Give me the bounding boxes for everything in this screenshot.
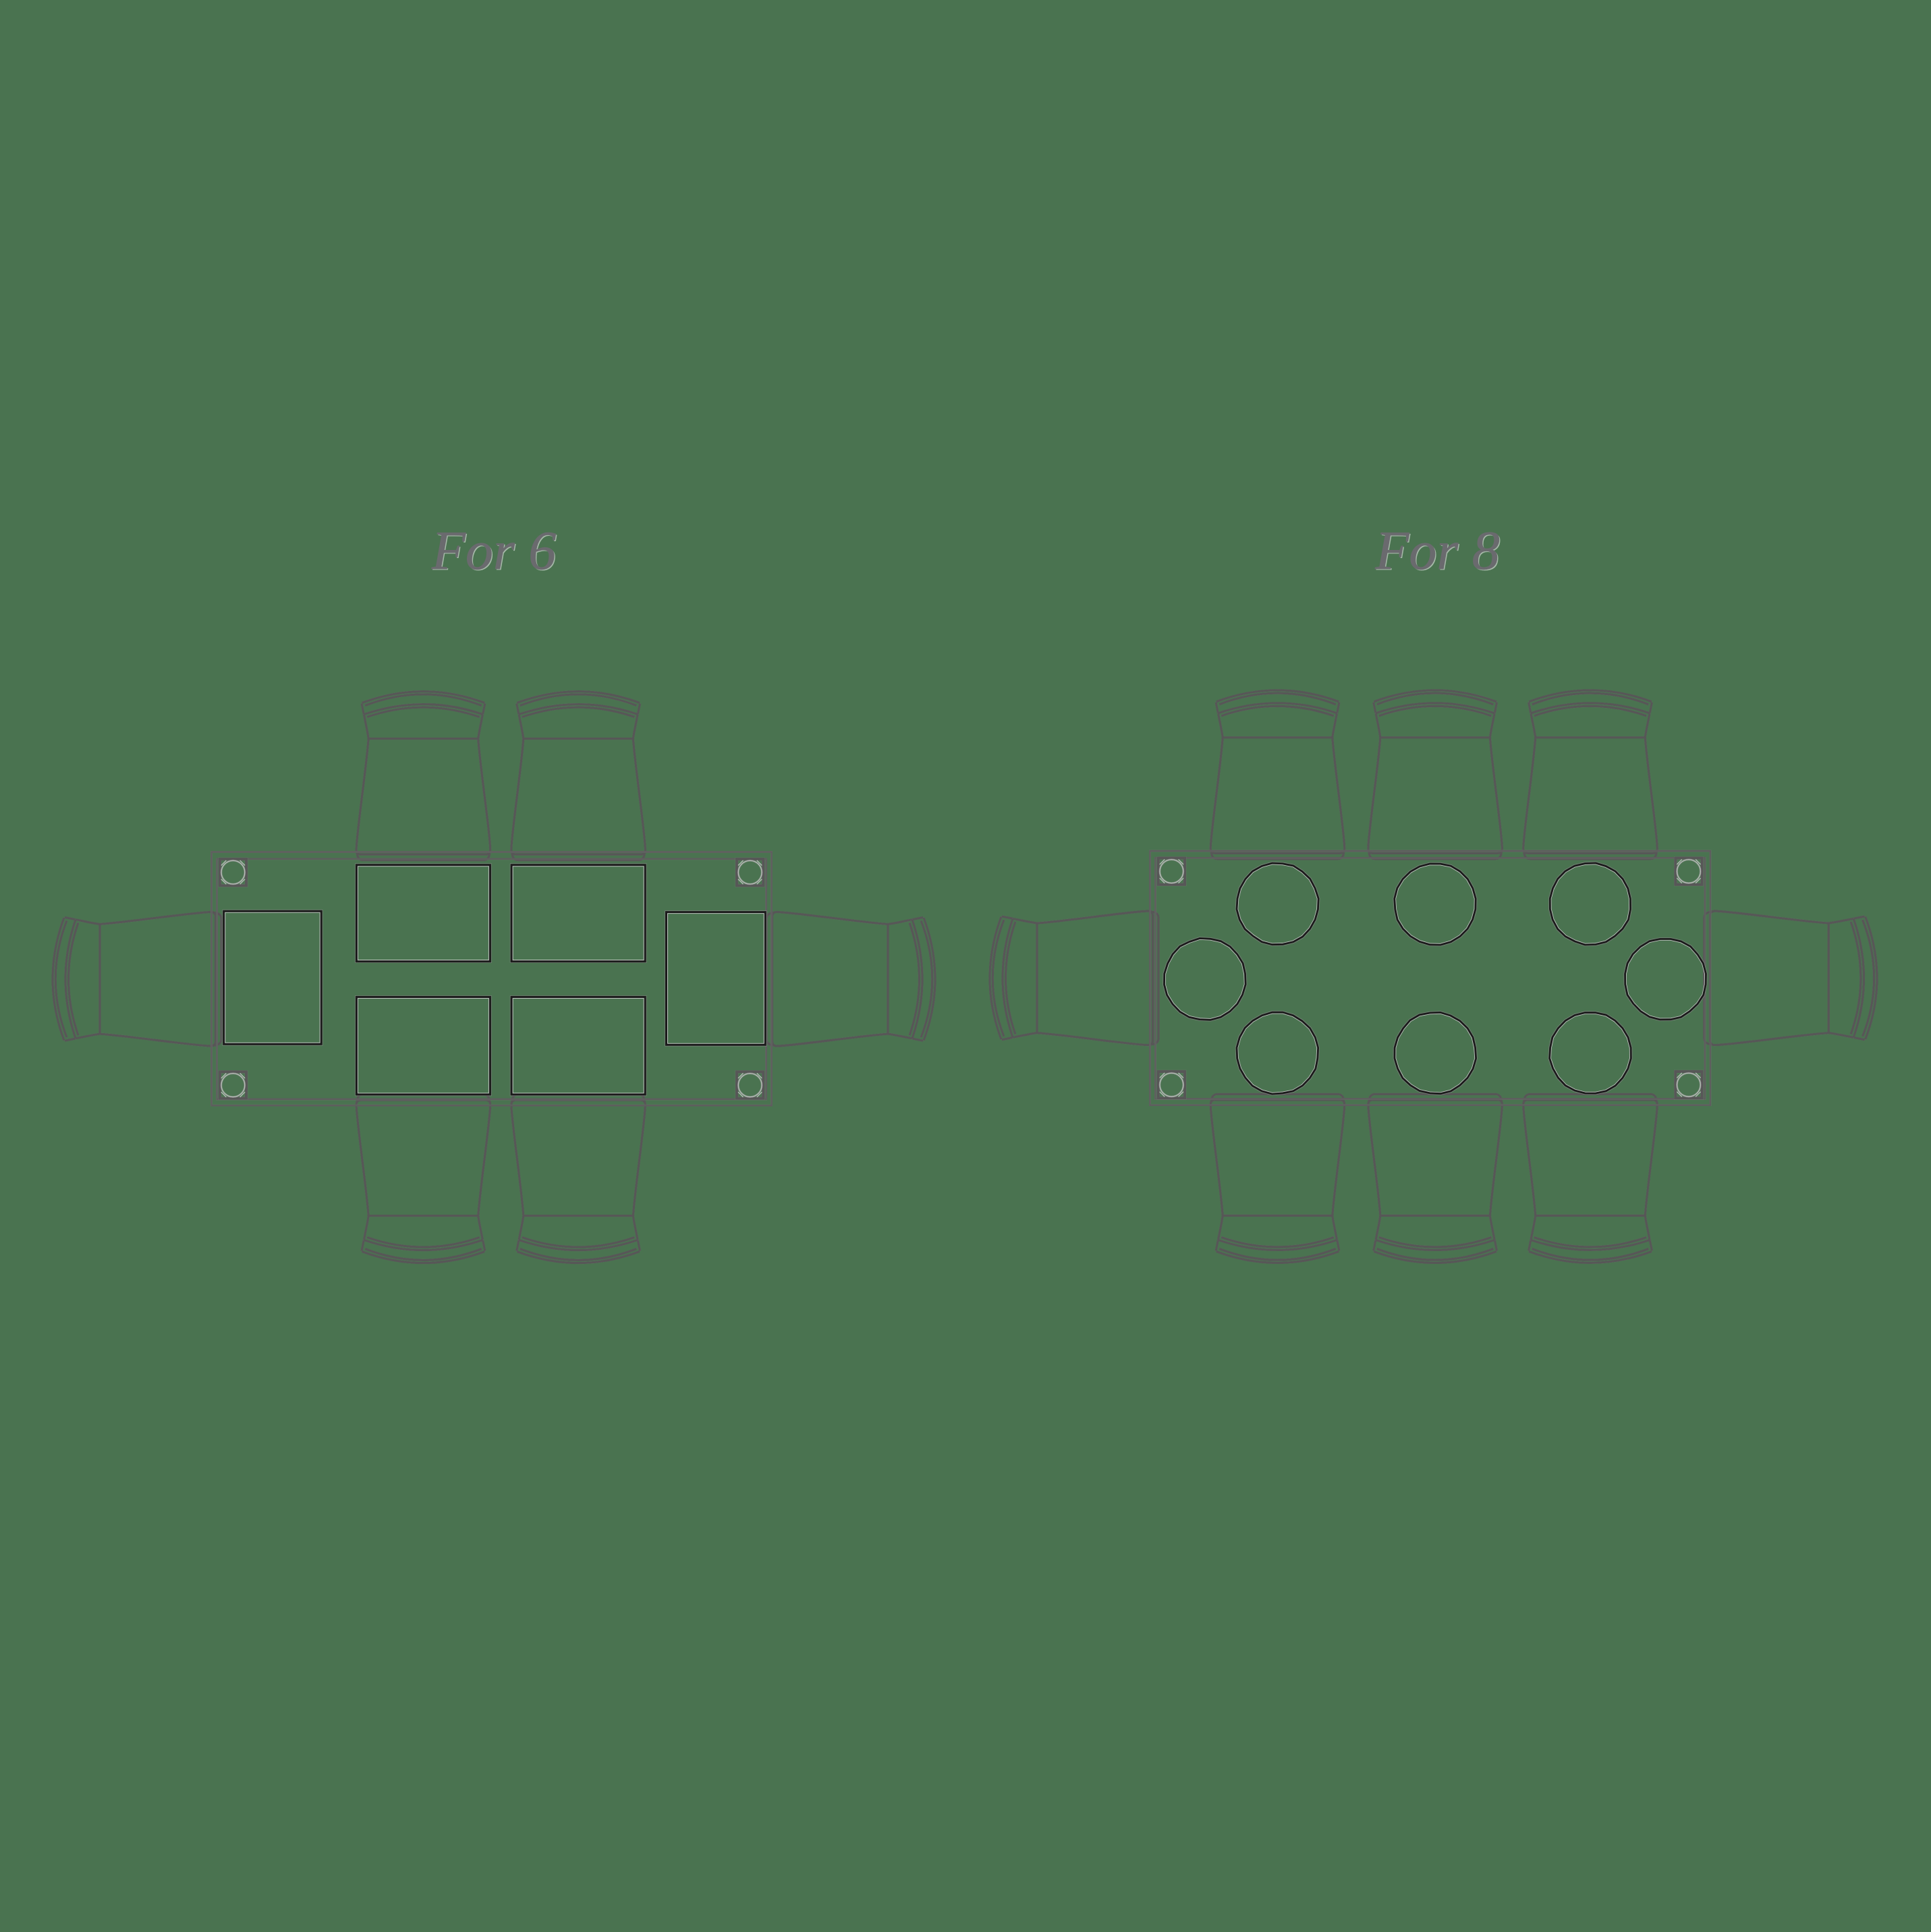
svg-text:For 6: For 6 xyxy=(431,520,557,581)
svg-text:For 8: For 8 xyxy=(1374,520,1500,581)
